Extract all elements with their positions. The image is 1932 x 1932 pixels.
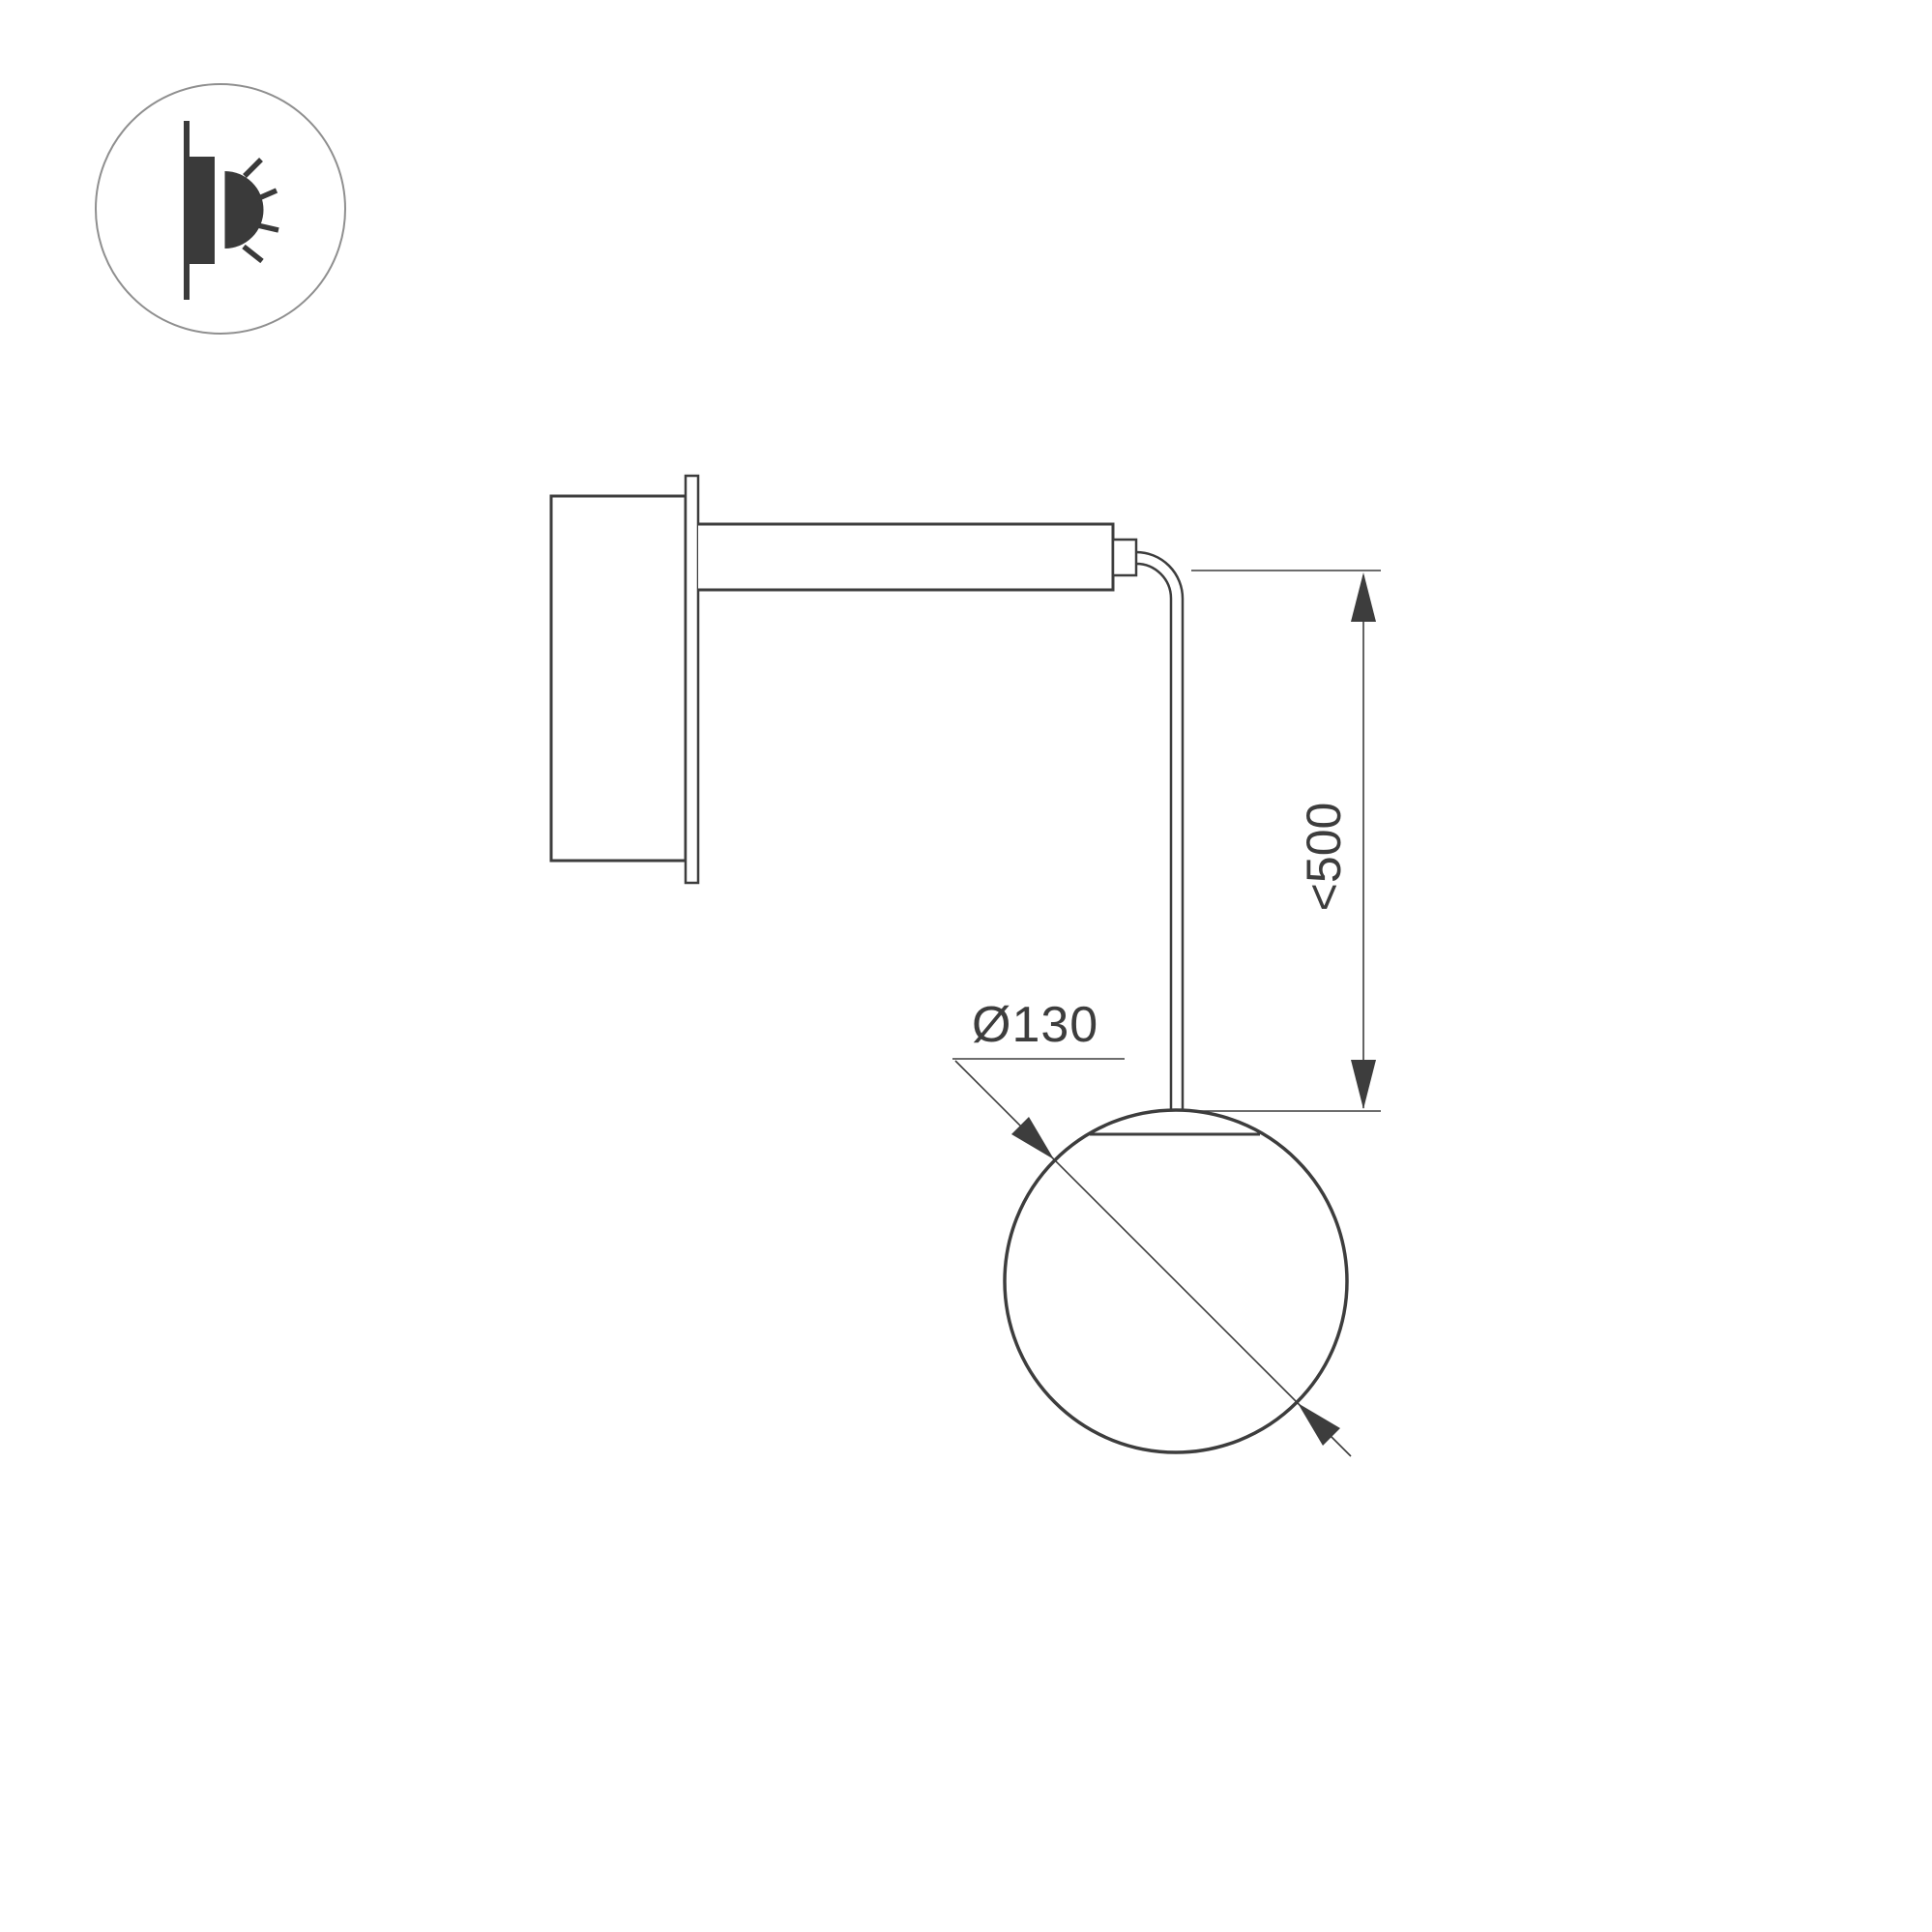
lamp-drawing: [551, 476, 1347, 1452]
height-dimension: <500: [1189, 571, 1381, 1111]
cable-connector: [1113, 540, 1136, 575]
cable-inner-line: [1136, 564, 1171, 1112]
height-dimension-label: <500: [1297, 803, 1351, 912]
lamp-body-icon: [190, 157, 215, 264]
technical-drawing-page: <500 Ø130: [0, 0, 1932, 1932]
wall-light-icon: [96, 84, 345, 334]
arrow-up-icon: [1351, 572, 1376, 622]
wall-plate: [686, 476, 698, 883]
diameter-dimension-label: Ø130: [972, 997, 1098, 1053]
mount-box: [551, 496, 686, 861]
horizontal-arm: [698, 524, 1113, 590]
icon-ring-circle: [96, 84, 345, 334]
arrow-down-icon: [1351, 1060, 1376, 1109]
cable-outer-line: [1136, 552, 1183, 1112]
wall-line-icon: [184, 121, 190, 300]
